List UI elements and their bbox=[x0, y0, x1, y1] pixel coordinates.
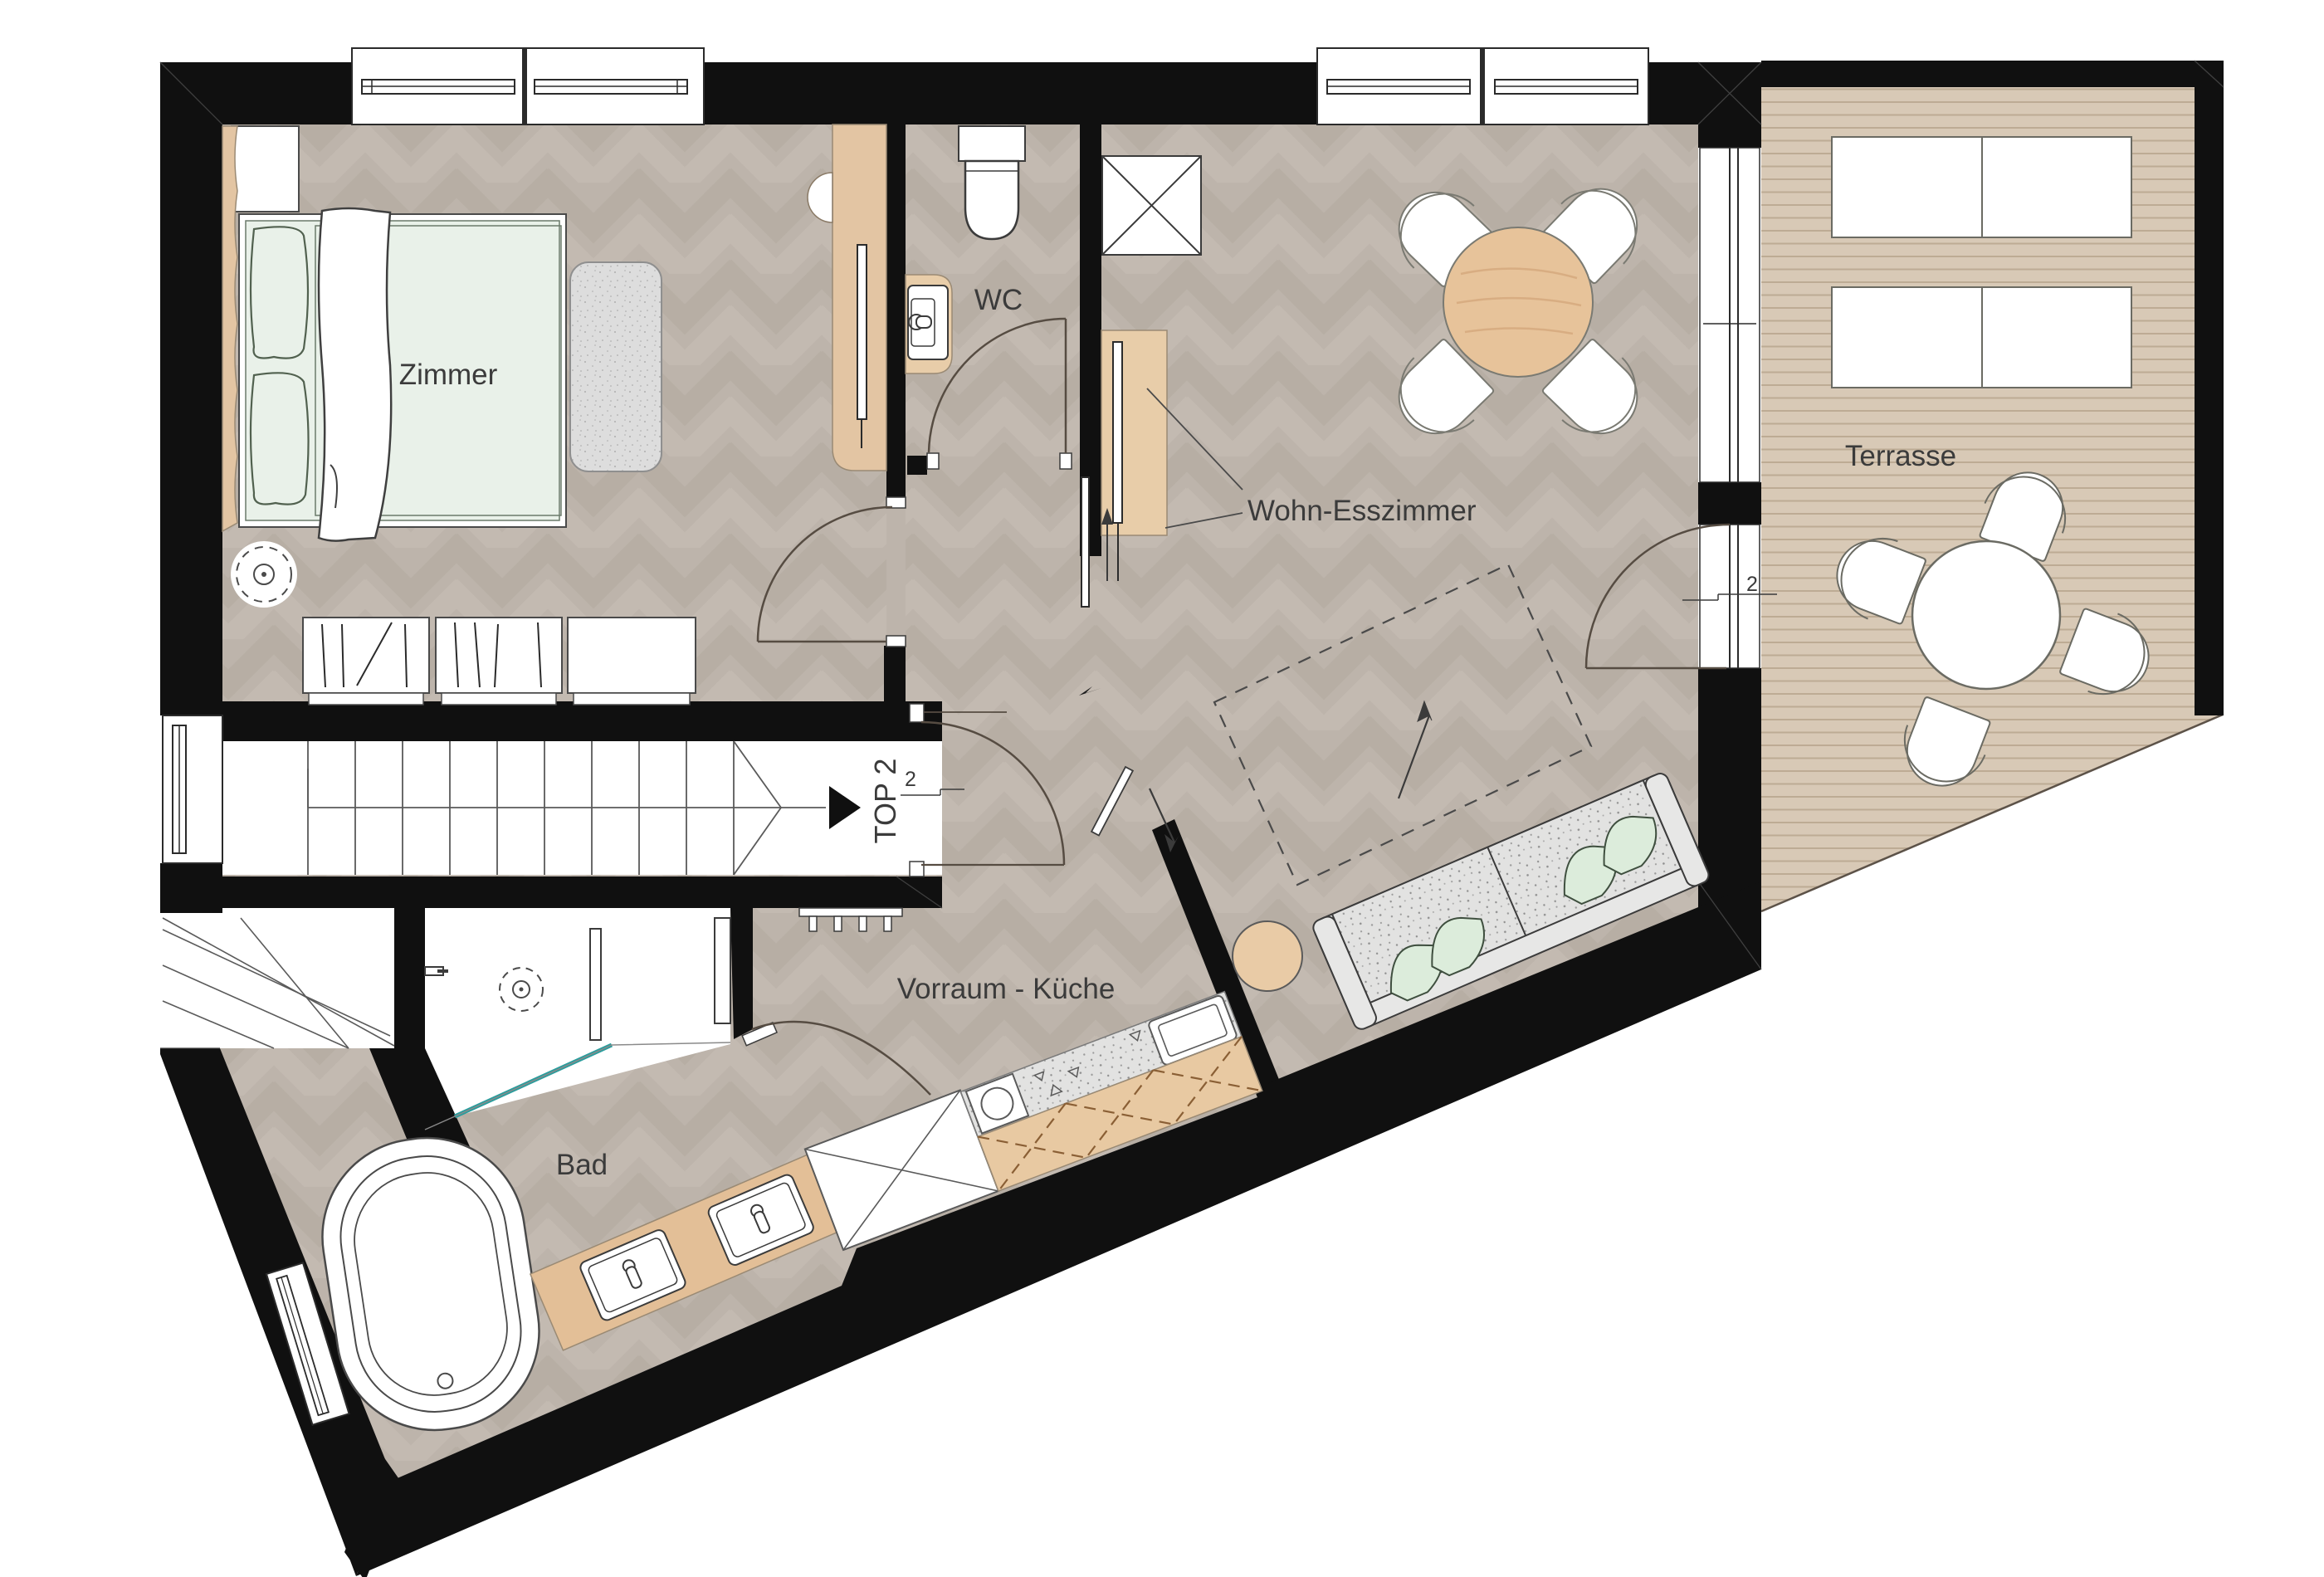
svg-text:Wohn-Esszimmer: Wohn-Esszimmer bbox=[1247, 495, 1477, 527]
svg-text:Bad: Bad bbox=[556, 1149, 608, 1181]
svg-text:TOP 2: TOP 2 bbox=[868, 759, 902, 844]
svg-text:WC: WC bbox=[974, 284, 1023, 316]
svg-text:Vorraum - Küche: Vorraum - Küche bbox=[897, 973, 1116, 1005]
svg-text:2: 2 bbox=[1746, 573, 1758, 596]
svg-text:Terrasse: Terrasse bbox=[1845, 440, 1956, 472]
svg-text:2: 2 bbox=[905, 768, 916, 791]
svg-text:Zimmer: Zimmer bbox=[399, 359, 498, 391]
